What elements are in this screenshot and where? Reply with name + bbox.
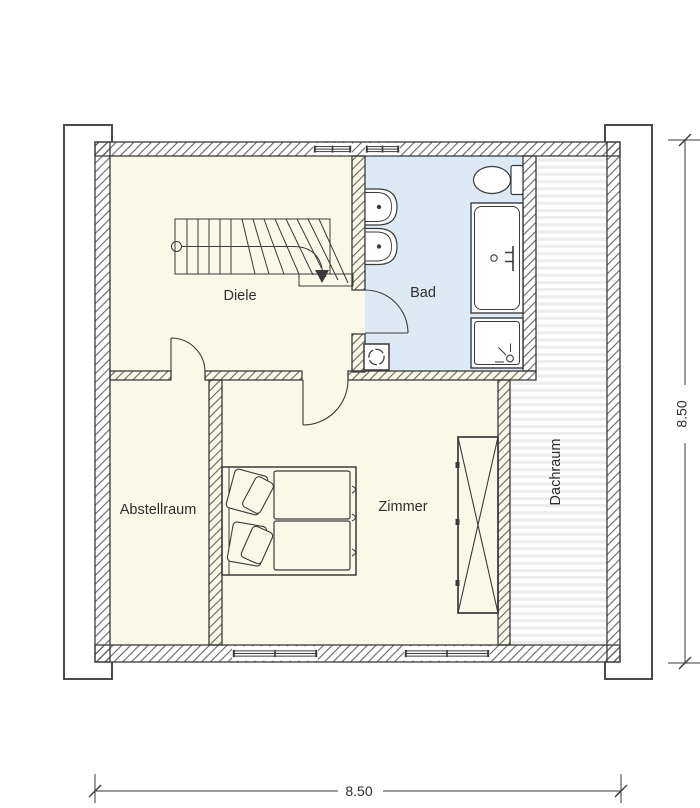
- dimension-label-height: 8.50: [674, 400, 690, 427]
- wall-diele-bad-upper: [352, 156, 365, 290]
- room-label-abstellraum: Abstellraum: [120, 502, 197, 518]
- wall-left: [95, 142, 110, 662]
- room-label-bad: Bad: [410, 285, 436, 301]
- wall-top: [95, 142, 620, 156]
- wall-bottom: [95, 645, 620, 662]
- window-bottom-right: [404, 646, 490, 661]
- floorplan-canvas: Diele Bad Abstellraum Zimmer Dachraum 8.…: [0, 0, 700, 808]
- window-top-bad: [365, 143, 400, 155]
- room-label-diele: Diele: [223, 288, 256, 304]
- toilet: [474, 166, 524, 195]
- wall-diele-bad-lower: [352, 334, 365, 372]
- washing-machine: [364, 344, 389, 370]
- wall-mid-segment-3: [348, 371, 536, 380]
- window-bottom-left: [232, 646, 318, 661]
- room-label-dachraum: Dachraum: [548, 439, 564, 506]
- dimension-label-width: 8.50: [345, 783, 372, 799]
- washbasin-2: [365, 229, 397, 265]
- wall-abstell-zimmer: [209, 380, 222, 645]
- room-label-zimmer: Zimmer: [378, 499, 427, 515]
- wall-mid-segment-1: [110, 371, 171, 380]
- wall-mid-segment-2: [205, 371, 302, 380]
- wall-zimmer-dachraum: [498, 380, 510, 645]
- wall-right: [607, 142, 620, 662]
- window-top-diele: [313, 143, 352, 155]
- wall-bad-dachraum: [523, 156, 536, 371]
- shower-drain: [507, 355, 514, 362]
- shower: [471, 318, 523, 368]
- bathtub: [471, 203, 523, 313]
- washbasin-1: [365, 189, 397, 225]
